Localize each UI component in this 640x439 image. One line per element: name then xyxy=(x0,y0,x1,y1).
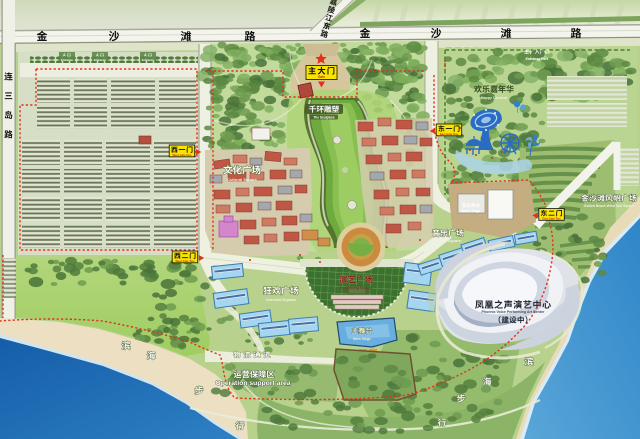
svg-text:Music Square: Music Square xyxy=(435,238,462,243)
svg-text:Carnival Square: Carnival Square xyxy=(266,297,297,302)
svg-text:Gate: Gate xyxy=(318,75,325,79)
svg-text:Cultural Square: Cultural Square xyxy=(227,177,258,182)
svg-text:East Gate Two: East Gate Two xyxy=(542,217,561,221)
svg-text:Golden Beach Wind Surf Square: Golden Beach Wind Surf Square xyxy=(584,204,635,208)
svg-text:Performing Square: Performing Square xyxy=(340,286,372,290)
svg-text:Entrance Park: Entrance Park xyxy=(526,57,549,61)
svg-text:Entrance: Entrance xyxy=(94,58,106,62)
svg-text:Phoenix Voice Performing Art C: Phoenix Voice Performing Art Center xyxy=(482,310,546,314)
svg-text:Music Stage: Music Stage xyxy=(462,209,481,213)
svg-text:Entrance: Entrance xyxy=(142,58,154,62)
svg-text:Operation support area: Operation support area xyxy=(215,380,290,387)
svg-text:Happy Carnival: Happy Carnival xyxy=(481,96,507,100)
svg-text:The Sculpture: The Sculpture xyxy=(313,116,334,120)
svg-text:Entrance: Entrance xyxy=(61,58,73,62)
svg-text:West Gate One: West Gate One xyxy=(172,153,192,157)
svg-text:East Gate One: East Gate One xyxy=(440,132,459,136)
svg-text:West Gate Two: West Gate Two xyxy=(175,259,194,263)
svg-text:Main Stage: Main Stage xyxy=(353,337,371,341)
